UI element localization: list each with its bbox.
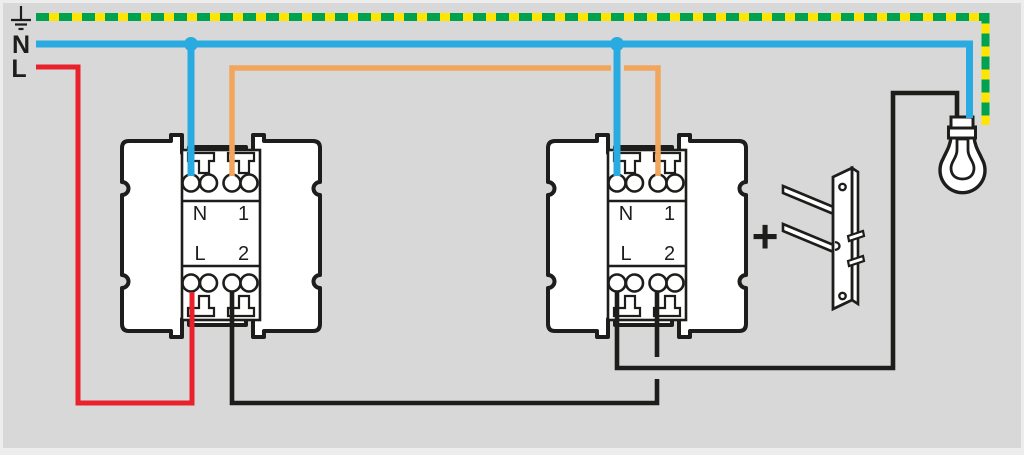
terminal-label-1: 1 (664, 203, 675, 225)
terminal-label-2: 2 (238, 243, 249, 265)
switch-module-2: N 1 L 2 (548, 135, 746, 337)
neutral-junction-dot (610, 37, 624, 51)
terminal-label-n: N (193, 203, 207, 225)
neutral-junction-dot (184, 37, 198, 51)
terminal-label-2: 2 (664, 243, 675, 265)
bulb-cap (951, 117, 973, 128)
line-label: L (11, 55, 26, 83)
wiring-diagram: N 1 L 2 N 1 L 2 + (0, 0, 1024, 455)
terminal-label-l: L (194, 243, 205, 265)
switch-module-1: N 1 L 2 (122, 135, 320, 337)
terminal-label-n: N (619, 203, 633, 225)
terminal-label-l: L (620, 243, 631, 265)
plus-sign: + (752, 210, 779, 262)
terminal-label-1: 1 (238, 203, 249, 225)
